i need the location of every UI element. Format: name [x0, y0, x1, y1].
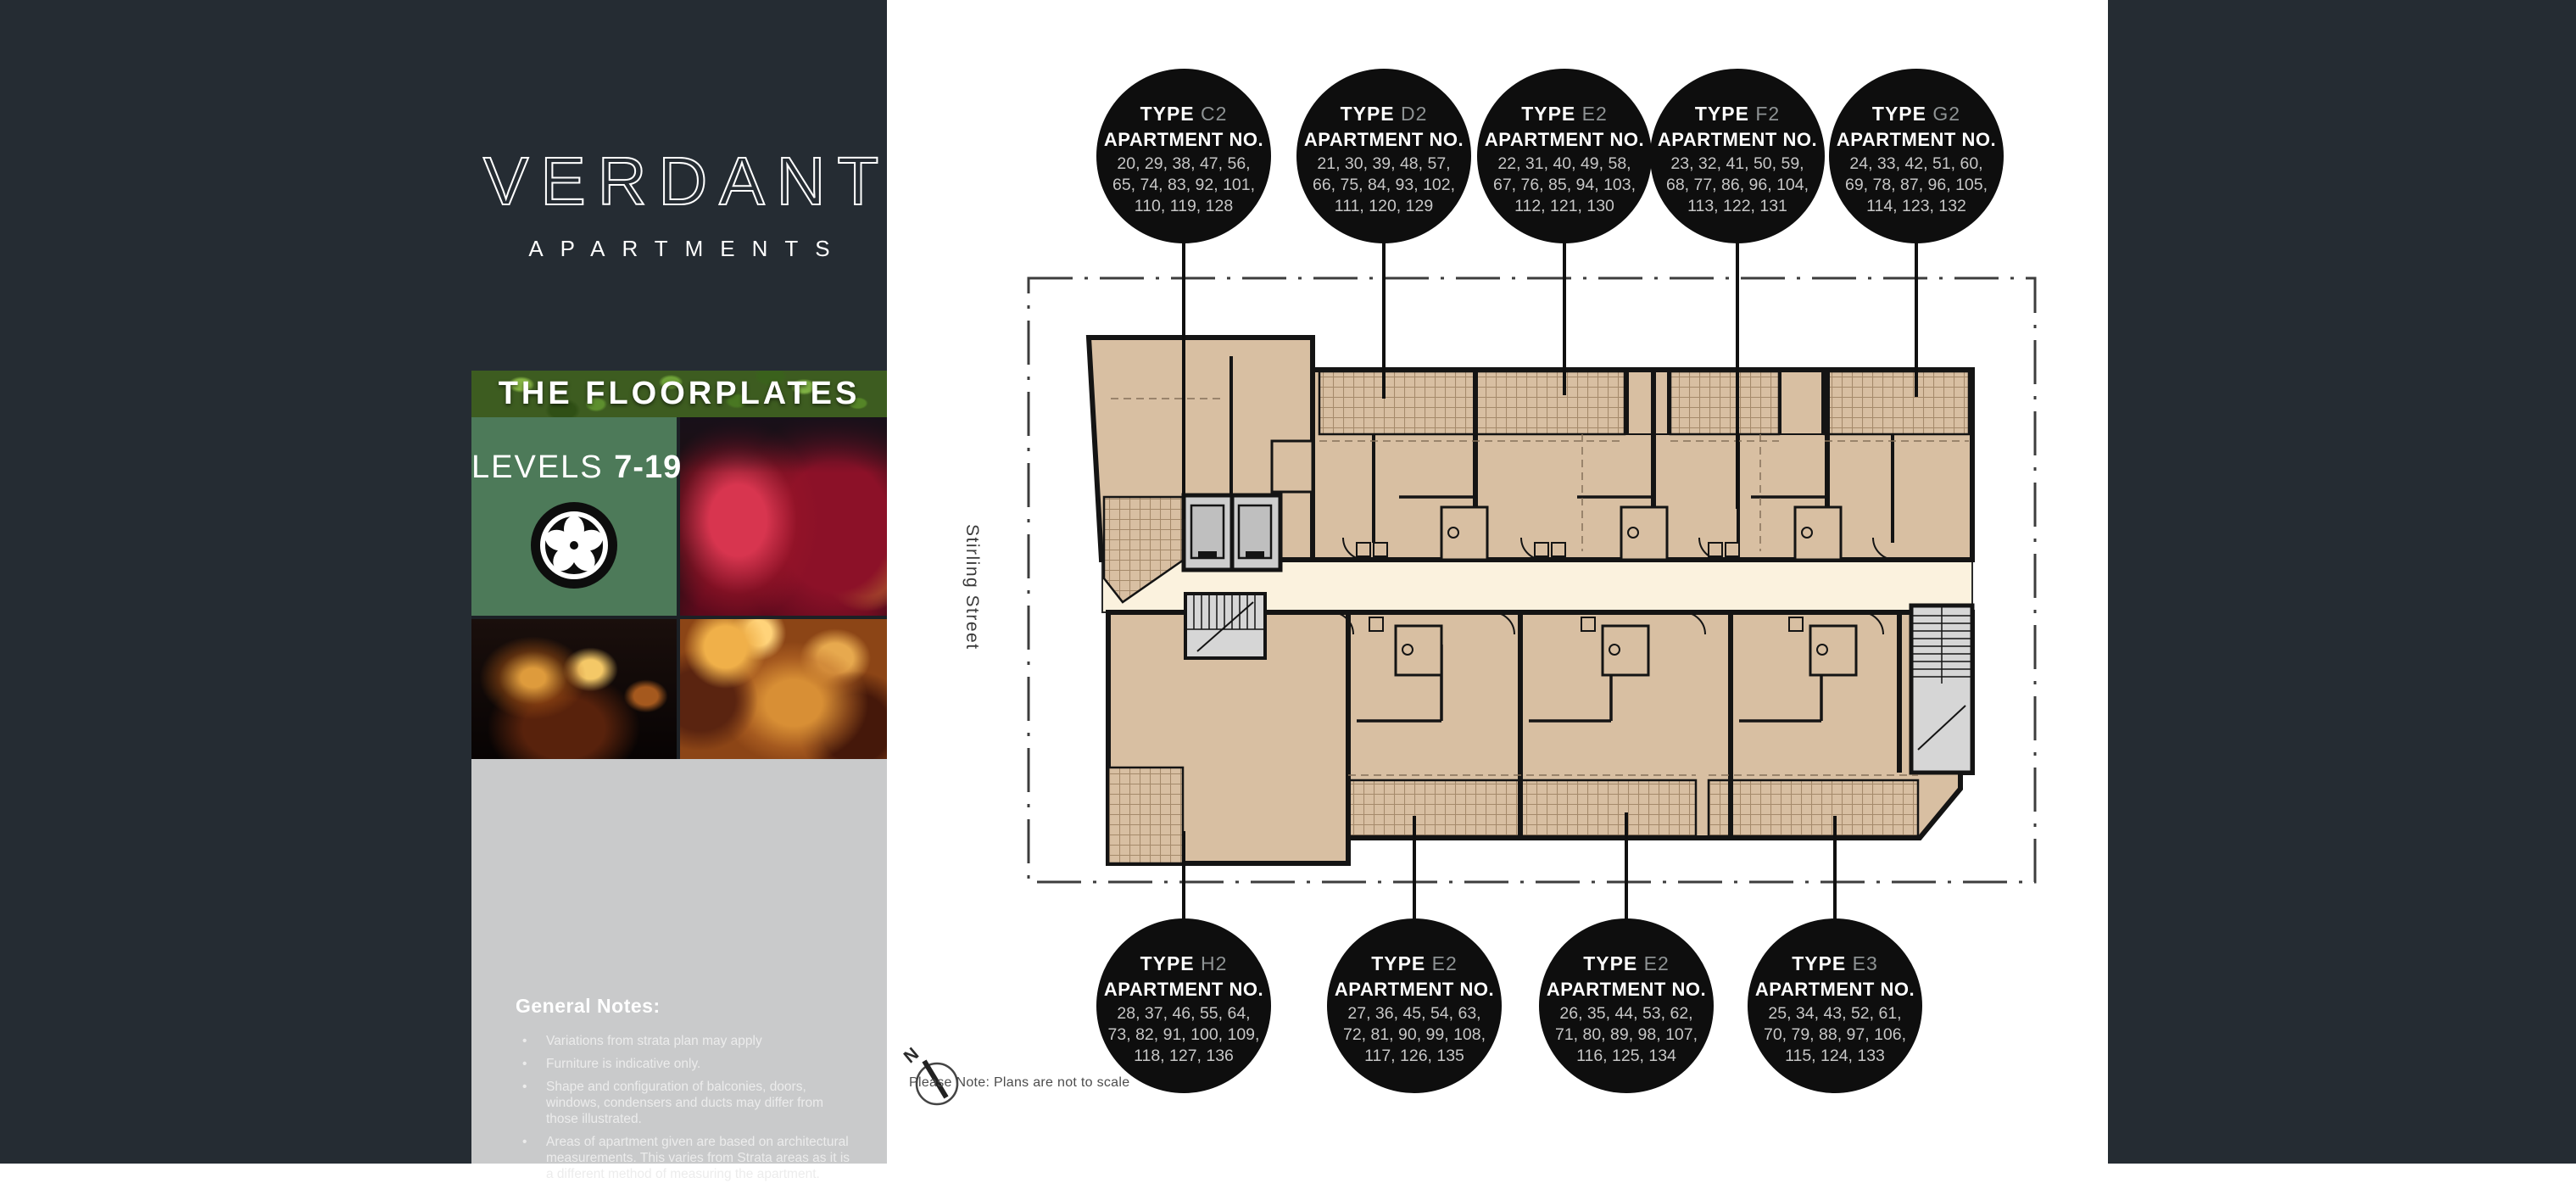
type-word: TYPE — [1140, 103, 1195, 125]
compass-icon: N — [900, 1044, 957, 1104]
street-label: Stirling Street — [962, 524, 982, 650]
type-code: F2 — [1755, 103, 1780, 125]
type-code: G2 — [1932, 103, 1960, 125]
general-notes-list: Variations from strata plan may apply Fu… — [516, 1033, 855, 1182]
apartment-numbers: 23, 32, 41, 50, 59,68, 77, 86, 96, 104,1… — [1650, 154, 1825, 217]
apartment-no-label: APARTMENT NO. — [1829, 129, 2004, 151]
type-word: TYPE — [1521, 103, 1575, 125]
apartment-no-label: APARTMENT NO. — [1539, 979, 1714, 1001]
type-code: E3 — [1853, 952, 1878, 974]
type-word: TYPE — [1583, 952, 1637, 974]
unit-walls — [1231, 356, 1969, 838]
general-note-item: Variations from strata plan may apply — [516, 1033, 855, 1049]
callout-type-line: TYPE F2 — [1650, 103, 1825, 126]
dashed-lines — [1111, 399, 1969, 775]
type-code: E2 — [1432, 952, 1458, 974]
general-note-item: Shape and configuration of balconies, do… — [516, 1079, 855, 1127]
type-callout-d2: TYPE D2 APARTMENT NO. 21, 30, 39, 48, 57… — [1296, 69, 1471, 243]
type-callout-c2: TYPE C2 APARTMENT NO. 20, 29, 38, 47, 56… — [1096, 69, 1271, 243]
type-callout-e3: TYPE E3 APARTMENT NO. 25, 34, 43, 52, 61… — [1748, 918, 1922, 1093]
apartment-numbers: 27, 36, 45, 54, 63,72, 81, 90, 99, 108,1… — [1327, 1003, 1502, 1067]
building-south-wing — [1108, 612, 1972, 863]
door-swings — [1331, 538, 1895, 634]
photo-dining-scene — [680, 619, 887, 759]
type-code: E2 — [1644, 952, 1670, 974]
apartment-no-label: APARTMENT NO. — [1477, 129, 1652, 151]
stair-core-east — [1911, 606, 1972, 773]
bathroom-pods — [1272, 441, 1856, 675]
sidebar-media-grid: LEVELS 7-19 — [471, 417, 887, 759]
general-note-item: Areas of apartment given are based on ar… — [516, 1134, 855, 1182]
type-callout-e2-south-2: TYPE E2 APARTMENT NO. 26, 35, 44, 53, 62… — [1539, 918, 1714, 1093]
type-code: H2 — [1201, 952, 1227, 974]
levels-word: LEVELS — [471, 449, 604, 485]
apartment-no-label: APARTMENT NO. — [1650, 129, 1825, 151]
general-notes: General Notes: Variations from strata pl… — [516, 995, 855, 1189]
type-callout-g2: TYPE G2 APARTMENT NO. 24, 33, 42, 51, 60… — [1829, 69, 2004, 243]
type-word: TYPE — [1371, 952, 1425, 974]
type-code: E2 — [1582, 103, 1608, 125]
type-code: C2 — [1201, 103, 1227, 125]
type-word: TYPE — [1341, 103, 1395, 125]
stair-core-west — [1185, 594, 1265, 658]
brand-logo: VERDANT APARTMENTS — [471, 142, 887, 262]
balconies — [1104, 371, 1969, 863]
photo-heritage-building — [680, 417, 887, 616]
callout-type-line: TYPE C2 — [1096, 103, 1271, 126]
type-code: D2 — [1401, 103, 1427, 125]
general-note-item: Furniture is indicative only. — [516, 1056, 855, 1072]
type-word: TYPE — [1140, 952, 1195, 974]
type-word: TYPE — [1872, 103, 1926, 125]
callout-leaders — [1184, 241, 1916, 922]
apartment-no-label: APARTMENT NO. — [1096, 979, 1271, 1001]
callout-type-line: TYPE G2 — [1829, 103, 2004, 126]
callout-type-line: TYPE E3 — [1748, 952, 1922, 975]
compass-north-label: N — [900, 1044, 923, 1067]
apartment-numbers: 25, 34, 43, 52, 61,70, 79, 88, 97, 106,1… — [1748, 1003, 1922, 1067]
site-boundary — [1029, 278, 2035, 882]
apartment-numbers: 28, 37, 46, 55, 64,73, 82, 91, 100, 109,… — [1096, 1003, 1271, 1067]
callout-type-line: TYPE E2 — [1477, 103, 1652, 126]
type-callout-f2: TYPE F2 APARTMENT NO. 23, 32, 41, 50, 59… — [1650, 69, 1825, 243]
apartment-no-label: APARTMENT NO. — [1327, 979, 1502, 1001]
apartment-no-label: APARTMENT NO. — [1296, 129, 1471, 151]
left-dark-panel — [0, 0, 471, 1164]
general-notes-title: General Notes: — [516, 995, 855, 1018]
brand-name: VERDANT — [471, 142, 887, 220]
callout-type-line: TYPE D2 — [1296, 103, 1471, 126]
brand-tagline: APARTMENTS — [471, 236, 887, 262]
apartment-numbers: 24, 33, 42, 51, 60,69, 78, 87, 96, 105,1… — [1829, 154, 2004, 217]
photo-bar-scene — [471, 619, 677, 759]
type-callout-e2-north: TYPE E2 APARTMENT NO. 22, 31, 40, 49, 58… — [1477, 69, 1652, 243]
type-word: TYPE — [1792, 952, 1846, 974]
type-word: TYPE — [1695, 103, 1749, 125]
plan-scale-note: Please Note: Plans are not to scale — [909, 1075, 1129, 1091]
apartment-numbers: 26, 35, 44, 53, 62,71, 80, 89, 98, 107,1… — [1539, 1003, 1714, 1067]
verdant-emblem-icon — [519, 490, 629, 600]
levels-range: 7-19 — [614, 449, 682, 485]
apartment-no-label: APARTMENT NO. — [1096, 129, 1271, 151]
type-callout-e2-south-1: TYPE E2 APARTMENT NO. 27, 36, 45, 54, 63… — [1327, 918, 1502, 1093]
apartment-no-label: APARTMENT NO. — [1748, 979, 1922, 1001]
fixtures — [1357, 528, 1827, 655]
lift-core — [1184, 495, 1280, 570]
section-title: THE FLOORPLATES — [499, 376, 861, 412]
general-notes-panel: General Notes: Variations from strata pl… — [471, 759, 887, 1164]
callout-type-line: TYPE H2 — [1096, 952, 1271, 975]
callout-type-line: TYPE E2 — [1327, 952, 1502, 975]
callout-type-line: TYPE E2 — [1539, 952, 1714, 975]
levels-label: LEVELS 7-19 — [471, 449, 677, 486]
apartment-numbers: 21, 30, 39, 48, 57,66, 75, 84, 93, 102,1… — [1296, 154, 1471, 217]
building-north-wing — [1089, 338, 1972, 560]
right-dark-panel — [2108, 0, 2576, 1164]
levels-panel: LEVELS 7-19 — [471, 417, 677, 616]
type-callout-h2: TYPE H2 APARTMENT NO. 28, 37, 46, 55, 64… — [1096, 918, 1271, 1093]
apartment-numbers: 22, 31, 40, 49, 58,67, 76, 85, 94, 103,1… — [1477, 154, 1652, 217]
section-banner: THE FLOORPLATES — [471, 371, 887, 417]
apartment-numbers: 20, 29, 38, 47, 56,65, 74, 83, 92, 101,1… — [1096, 154, 1271, 217]
corridor — [1102, 560, 1972, 612]
